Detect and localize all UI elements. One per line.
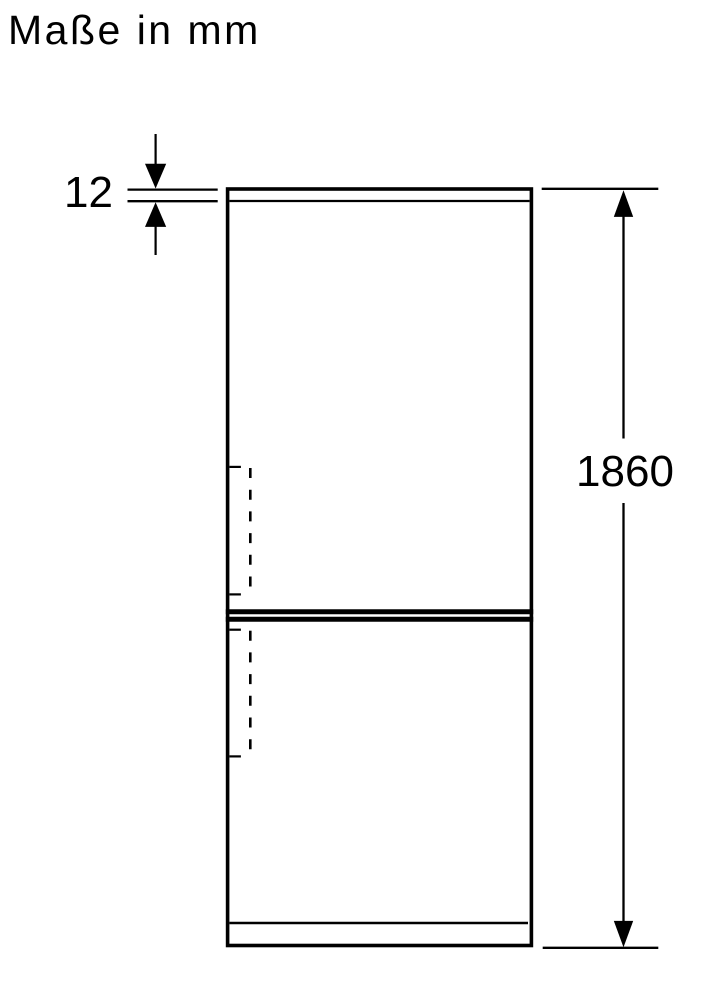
- dim-12-arrowhead-up: [145, 202, 166, 227]
- appliance-drawing: [0, 0, 705, 1000]
- dim-label-top-panel-thickness: 12: [43, 171, 113, 215]
- dim-1860-arrowhead-up: [614, 190, 633, 217]
- dim-1860-arrowhead-down: [614, 921, 633, 947]
- dim-label-overall-height: 1860: [555, 450, 695, 494]
- dim-12-arrowhead-down: [145, 164, 166, 189]
- fridge-outline: [228, 189, 532, 946]
- dimension-diagram: Maße in mm 12 1860: [0, 0, 705, 1000]
